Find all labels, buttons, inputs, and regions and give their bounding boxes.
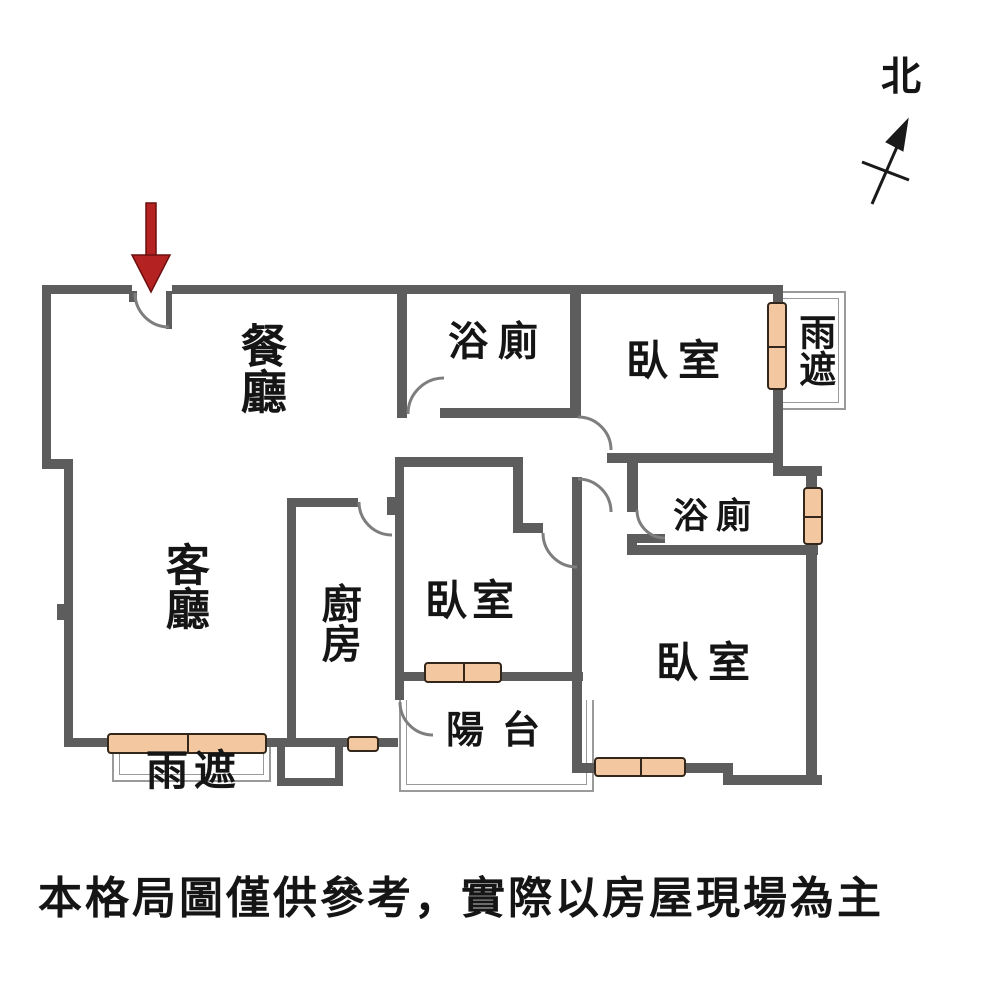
door-arc-bath1 <box>408 378 444 414</box>
plan-overlay <box>0 0 1000 1000</box>
room-label-bath1: 浴廁 <box>448 322 548 363</box>
wall-bath1-bottom <box>440 408 581 418</box>
room-label-kitchen: 廚房 <box>317 583 358 663</box>
room-label-canopy-bottom: 雨遮 <box>146 751 242 794</box>
cap-entrance-left <box>129 291 137 302</box>
wall-left-upper <box>42 285 51 467</box>
wall-bed2-stub <box>513 523 543 533</box>
wall-kitchen-left <box>287 498 296 746</box>
wall-bed3-left <box>572 477 582 773</box>
window-bedroom1-divider <box>768 346 786 348</box>
window-bath2-divider <box>804 516 822 518</box>
floor-plan: 餐廳 客廳 廚房 浴廁 臥室 浴廁 臥室 臥室 陽台 雨遮 雨遮 北 本格局圖僅… <box>0 0 1000 1000</box>
room-label-bedroom2: 臥室 <box>425 581 519 624</box>
entrance-arrow <box>132 203 170 292</box>
wall-left-mid <box>64 459 73 746</box>
room-label-living: 客廳 <box>160 542 205 630</box>
door-leaf-entrance <box>166 291 172 329</box>
window-bedroom3-divider <box>640 758 642 776</box>
door-arc-entrance <box>135 293 169 327</box>
room-label-dining: 餐廳 <box>236 322 283 414</box>
room-label-bath2: 浴廁 <box>673 499 759 535</box>
wall-kitchen-right <box>395 457 404 700</box>
disclaimer-text: 本格局圖僅供參考，實際以房屋現場為主 <box>38 862 968 926</box>
wall-bath2-left-upper <box>627 460 638 512</box>
ledge-bottom <box>277 778 343 786</box>
wall-top-left <box>42 285 132 294</box>
wall-bed3-bottom-right <box>723 775 822 785</box>
room-label-balcony: 陽台 <box>446 712 558 751</box>
window-bedroom1 <box>767 302 787 390</box>
compass-north-label: 北 <box>881 57 921 98</box>
window-bedroom3 <box>594 757 686 777</box>
wall-dining-bath1 <box>397 285 407 418</box>
window-bath2 <box>803 487 823 545</box>
wall-top-right <box>172 285 783 294</box>
wall-bed2-corner <box>513 457 523 533</box>
wall-kitchen-top <box>287 498 358 507</box>
wall-left-notch <box>57 604 65 620</box>
room-label-bedroom1: 臥室 <box>626 341 730 384</box>
door-arc-hall-upper <box>578 417 611 450</box>
door-arc-hall-lower <box>578 479 611 512</box>
cap-kitchen-door <box>387 497 396 515</box>
wall-bath2-bottom <box>627 545 818 555</box>
room-label-canopy-right: 雨遮 <box>794 313 832 387</box>
ledge-right <box>335 746 343 786</box>
wall-bath1-right <box>570 285 581 418</box>
window-kitchen-small <box>347 736 379 752</box>
window-bedroom2 <box>424 662 502 683</box>
room-label-bedroom3: 臥室 <box>656 643 760 686</box>
window-bedroom2-divider <box>463 663 465 682</box>
wall-bed2-top <box>395 457 523 467</box>
compass-arrow <box>862 119 909 204</box>
